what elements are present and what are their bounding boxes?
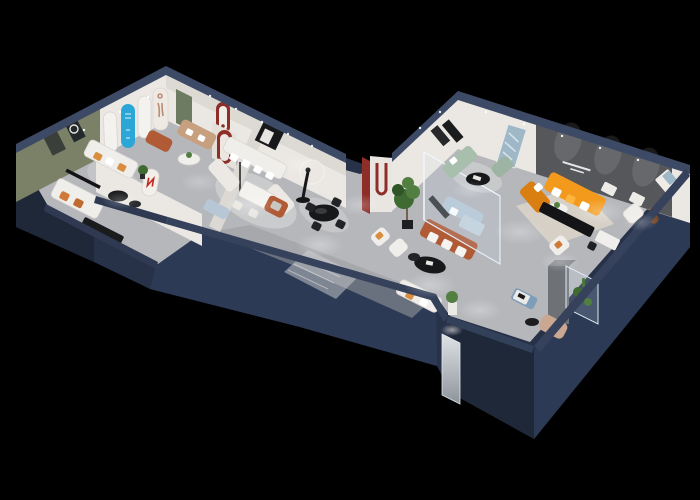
table-plant [186,152,192,158]
black-side-table [408,253,420,261]
display-plant [584,298,592,306]
showroom-render [0,0,700,500]
ficus-foliage [392,184,404,196]
mirror-door-panel [442,334,460,404]
plant-pot [140,174,145,179]
ficus-foliage [402,177,414,189]
black-side-table [525,318,539,326]
cyan-arch-panel [121,104,135,148]
plant-pedestal [448,302,457,315]
isometric-floorplan [0,0,700,500]
mannequin-base [296,197,310,203]
potted-plant [138,165,148,175]
table-highlight [315,208,327,214]
white-arch-niche [138,96,151,138]
table-vase-plant [554,202,560,208]
display-cactus [582,278,585,287]
ficus-pot [402,220,413,229]
